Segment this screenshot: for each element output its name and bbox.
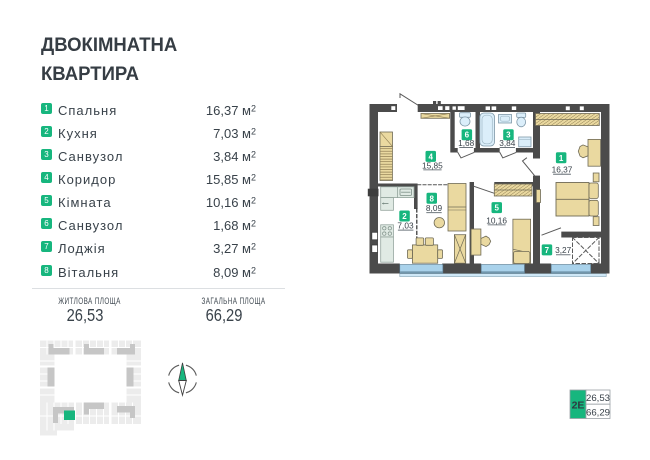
- svg-text:5: 5: [494, 204, 499, 213]
- svg-text:10,16: 10,16: [486, 215, 507, 225]
- svg-text:8,09: 8,09: [426, 203, 443, 213]
- svg-text:7: 7: [545, 246, 550, 255]
- svg-text:3,84: 3,84: [499, 138, 516, 148]
- svg-text:66,29: 66,29: [586, 407, 610, 418]
- svg-text:1: 1: [559, 154, 564, 163]
- svg-text:2Е: 2Е: [572, 400, 585, 412]
- svg-text:15,85: 15,85: [422, 160, 443, 170]
- svg-text:26,53: 26,53: [586, 393, 610, 404]
- svg-text:1,68: 1,68: [458, 138, 475, 148]
- svg-text:8: 8: [429, 194, 434, 203]
- svg-text:16,37: 16,37: [552, 165, 573, 175]
- svg-text:3,27: 3,27: [555, 245, 572, 255]
- svg-text:7,03: 7,03: [397, 221, 414, 231]
